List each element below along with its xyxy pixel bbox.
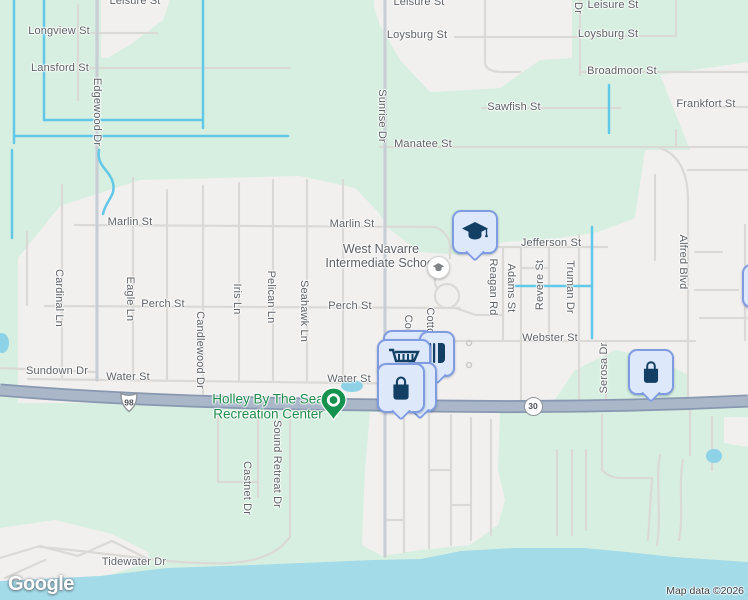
street-label: Leisure St [587,0,638,11]
school-pin[interactable] [452,210,498,254]
recreation-center-pin[interactable] [320,387,347,426]
street-label: Eagle Ln [124,277,136,322]
map-attribution: Map data ©2026 [666,585,744,597]
shopping-bag-pin[interactable] [377,363,425,413]
street-label: Marlin St [108,216,153,228]
street-label: Perch St [141,298,184,310]
street-label: Seahawk Ln [298,280,310,342]
street-label: Jefferson St [521,237,581,249]
street-label: Dr [572,2,584,14]
street-label: Loysburg St [578,28,638,40]
street-label: Frankfort St [676,98,735,110]
street-label: Serosa Dr [598,343,610,394]
school-circle-marker[interactable] [427,256,450,279]
street-label: Broadmoor St [587,65,657,77]
shopping-bag-icon [638,358,664,386]
street-label: Cardinal Ln [53,269,65,327]
street-label: Alfred Blvd [677,235,689,290]
street-label: Pelican Ln [265,271,277,324]
street-label: Lansford St [31,62,89,74]
street-label: Water St [106,371,150,383]
street-label: Truman Dr [564,260,576,314]
graduation-cap-icon [432,262,445,273]
street-label: Perch St [328,300,371,312]
google-logo[interactable]: Google [8,573,74,596]
street-label: Sawfish St [487,101,540,113]
school-place-label[interactable]: West Navarre Intermediate School [325,242,436,270]
recreation-center-label[interactable]: Holley By The Sea Recreation Center [212,393,324,422]
school-label-line2: Intermediate School [325,256,436,270]
recreation-label-line2: Recreation Center [212,407,324,422]
recreation-label-line1: Holley By The Sea [212,393,324,408]
street-label: Candlewood Dr [194,311,206,389]
street-label: Revere St [534,260,546,310]
school-label-line1: West Navarre [325,242,436,256]
street-label: Water St [327,373,371,385]
partial-pin-right-edge[interactable] [742,264,748,308]
street-label: Loysburg St [387,29,447,41]
park-pin-icon [320,387,347,421]
graduation-cap-icon [460,220,490,244]
street-label: Webster St [522,332,578,344]
street-label: Leisure St [109,0,160,7]
street-label: Leisure St [393,0,444,8]
state-route-30-shield: 30 [523,396,543,416]
street-label: Adams St [505,264,517,313]
street-label: Marlin St [330,218,375,230]
us-route-98-shield: 98 [118,391,140,414]
street-label: Castnet Dr [241,461,253,515]
street-label: Tidewater Dr [102,556,166,568]
street-label: Sundown Dr [26,365,88,377]
street-label: Sunrise Dr [376,89,388,142]
street-label: Manatee St [394,138,452,150]
street-label: Iris Ln [231,283,243,314]
street-label: Edgewood Dr [91,78,103,146]
street-label: Reagan Rd [487,259,499,316]
street-label: Longview St [28,25,90,37]
street-label: Sound Retreat Dr [271,420,283,508]
shopping-bag-pin-east[interactable] [628,349,674,395]
shopping-bag-icon [387,373,415,403]
